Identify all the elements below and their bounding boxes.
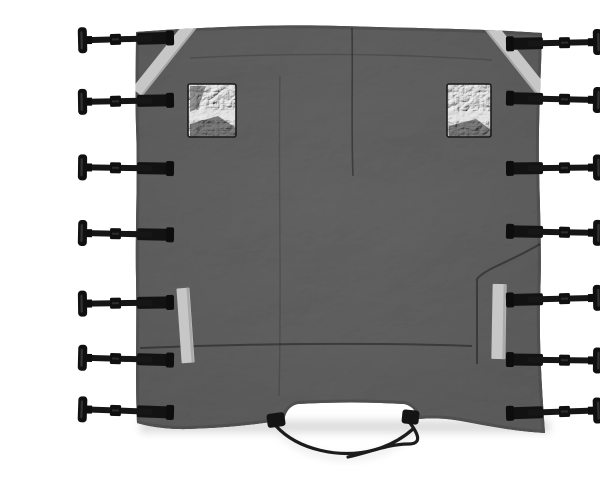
cover-illustration	[40, 16, 600, 466]
notch-tab-left	[266, 412, 286, 428]
notch-tab-right	[401, 409, 419, 425]
reflective-strip-right	[491, 284, 506, 359]
product-photo	[40, 16, 600, 466]
